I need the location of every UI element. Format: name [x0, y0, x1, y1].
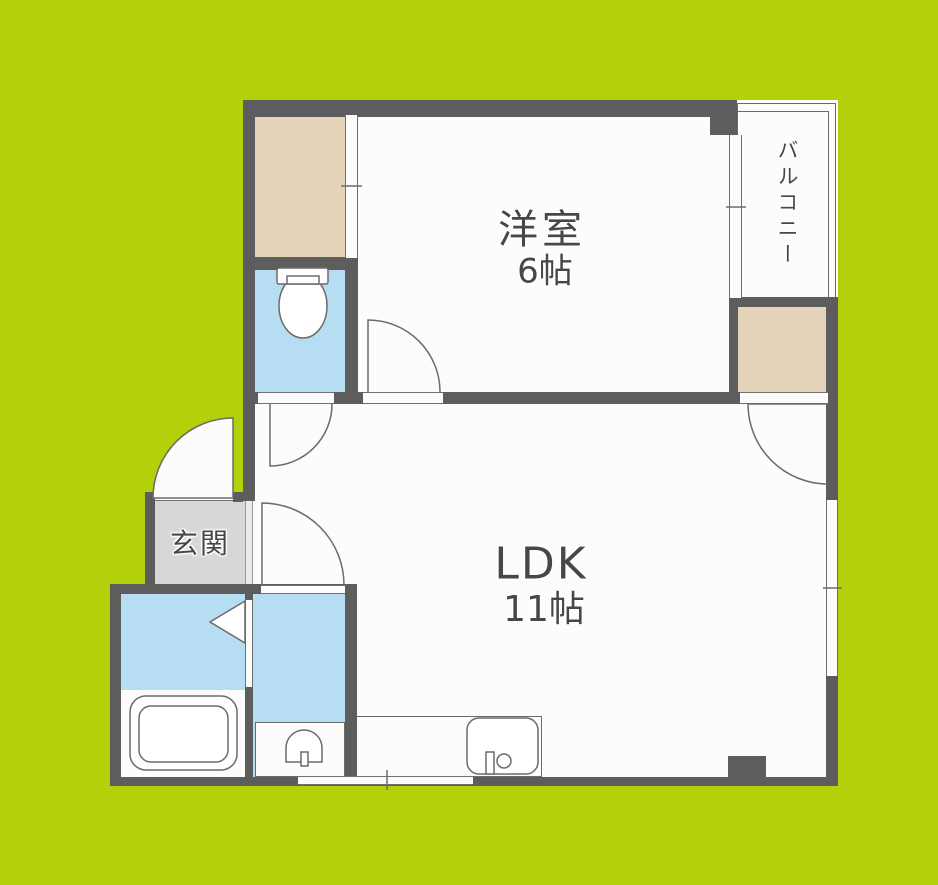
fixtures-overlay	[0, 0, 938, 885]
floorplan: 洋室 6帖 LDK 11帖 玄関 バルコニー	[0, 0, 938, 885]
entrance-label: 玄関	[170, 522, 230, 562]
washbasin-tap	[301, 752, 308, 766]
kitchen-sink-tap	[486, 752, 494, 774]
western-room-size: 6帖	[517, 244, 573, 293]
ldk-size: 11帖	[503, 580, 585, 632]
closet-right-door-swing	[748, 404, 828, 484]
entrance-door-swing	[153, 418, 233, 498]
toilet-door-swing	[270, 404, 332, 466]
western-room-door-swing	[368, 320, 440, 392]
balcony-label: バルコニー	[772, 139, 802, 269]
toilet-tank-lid	[287, 276, 319, 284]
washroom-door-swing	[262, 503, 344, 585]
bathroom-folding-door	[210, 601, 245, 643]
kitchen-sink-knob	[497, 754, 511, 768]
